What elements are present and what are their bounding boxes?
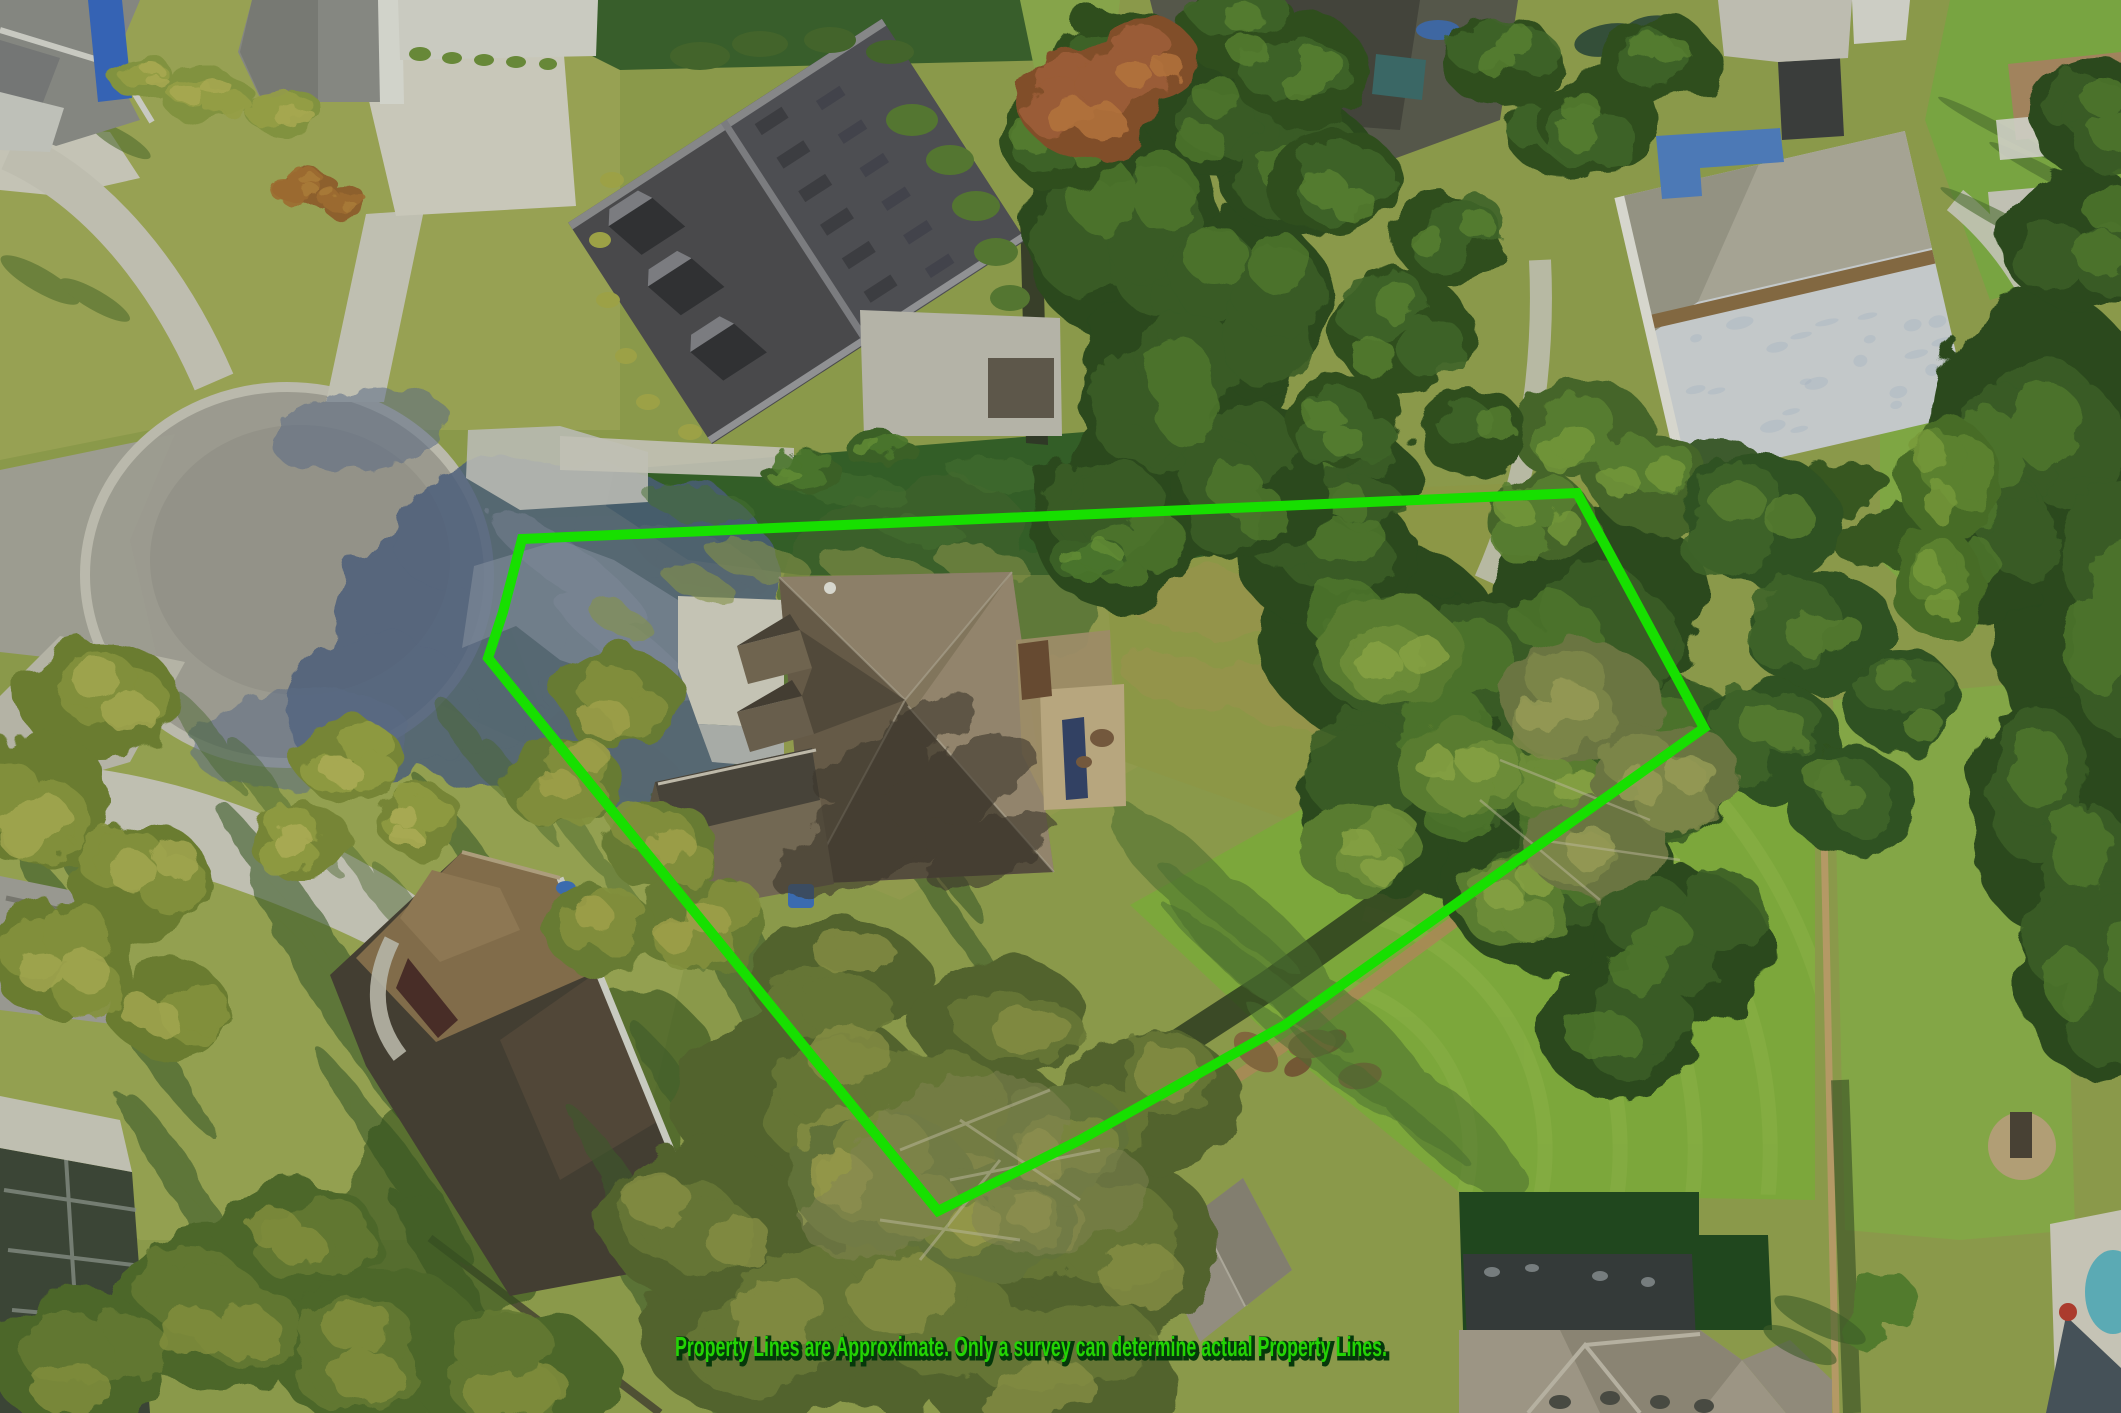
svg-text:Property Lines are Approximate: Property Lines are Approximate. Only a s…	[675, 1331, 1387, 1362]
